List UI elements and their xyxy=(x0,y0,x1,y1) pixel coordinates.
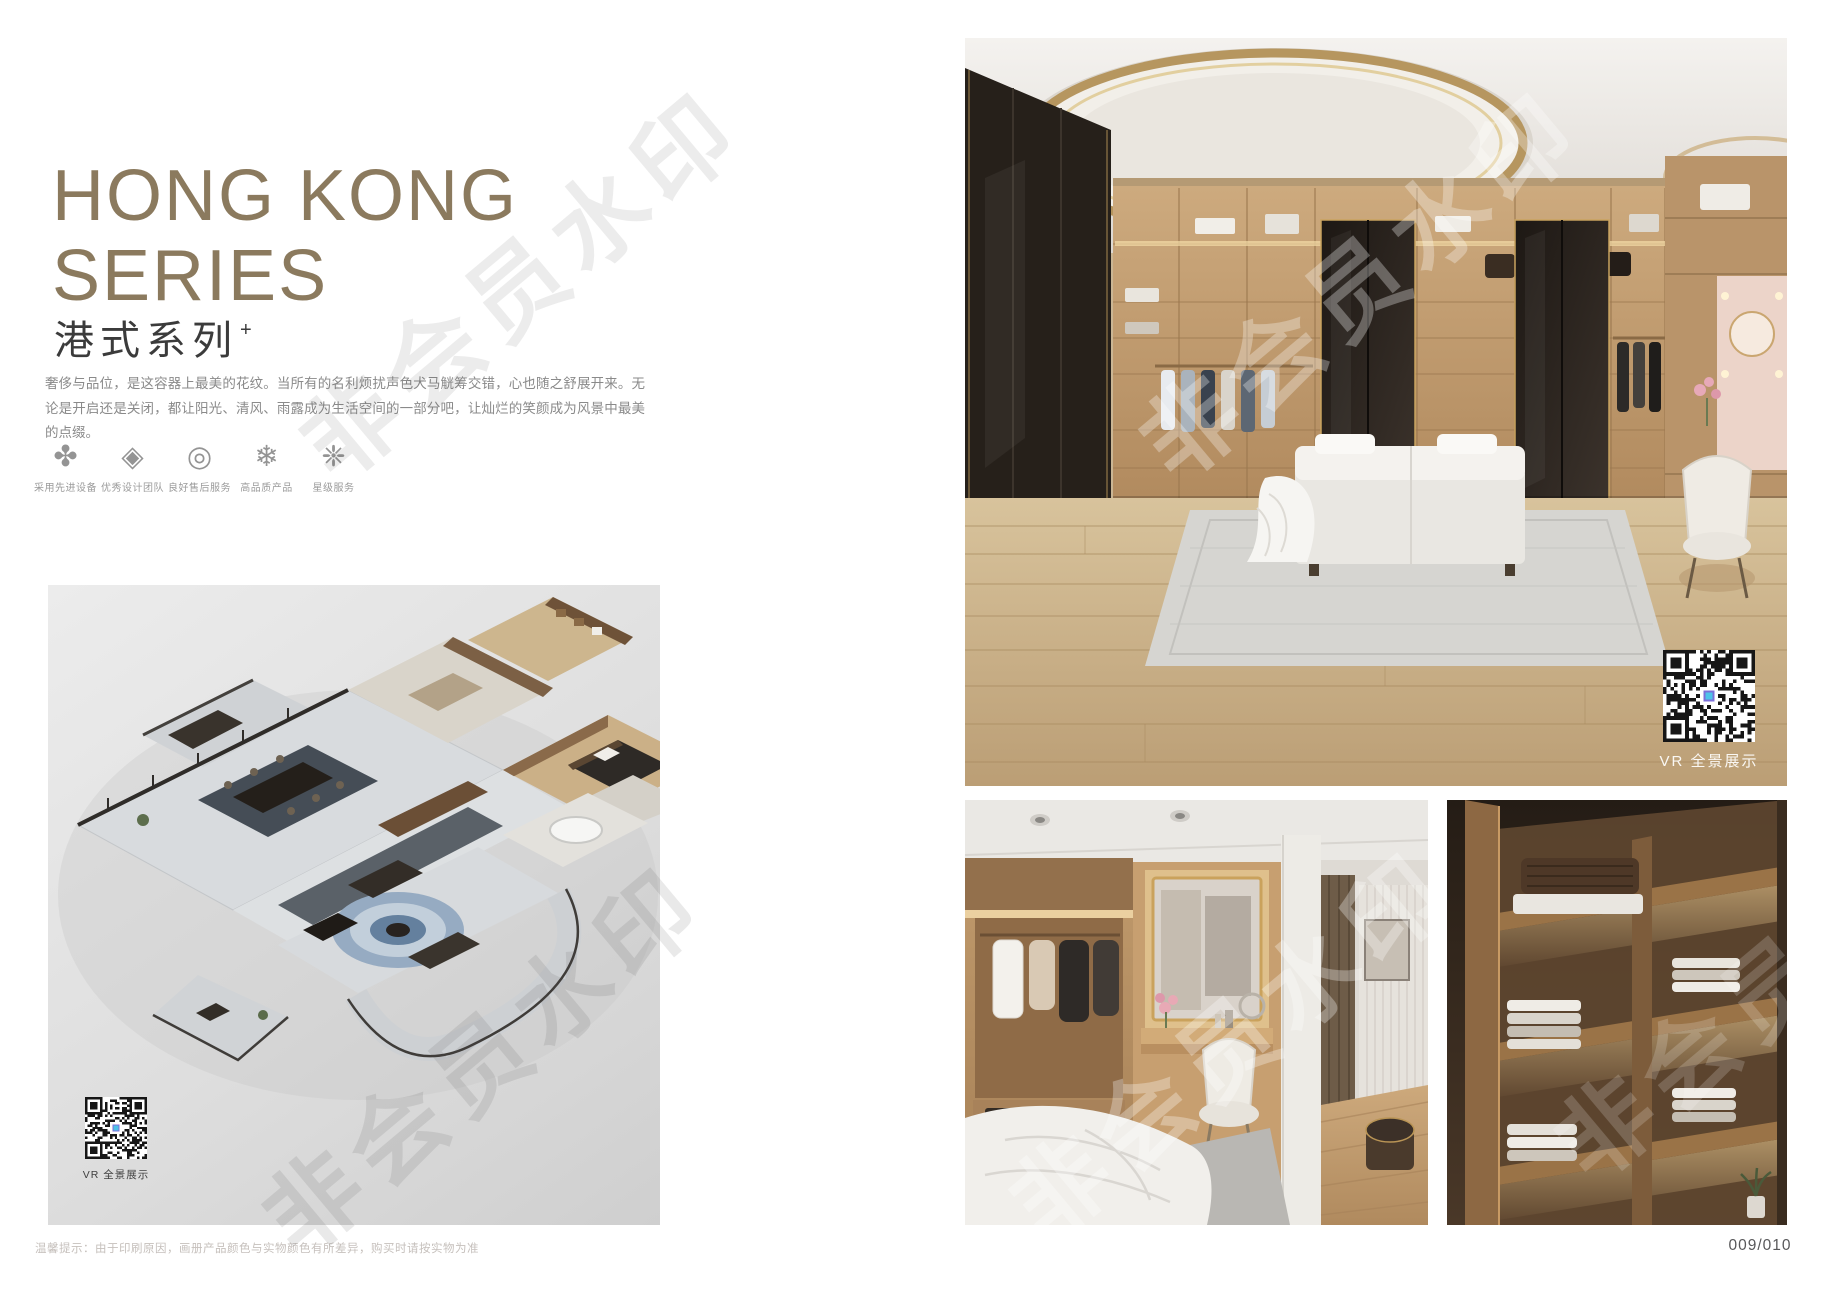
quality-product-icon: ❄ xyxy=(235,436,298,476)
after-sales-service-icon: ◎ xyxy=(168,436,231,476)
advanced-equipment-icon: ✤ xyxy=(34,436,97,476)
series-title-cn-text: 港式系列 xyxy=(54,319,238,363)
feature-label: 星级服务 xyxy=(302,479,365,494)
footer-disclaimer: 温馨提示：由于印刷原因，画册产品颜色与实物颜色有所差异，购买时请按实物为准 xyxy=(35,1240,479,1256)
photo-walkin-closet: VR 全景展示 xyxy=(965,38,1787,786)
photo-vanity-corner xyxy=(965,800,1428,1225)
star-service-icon: ❈ xyxy=(302,436,365,476)
title-line-2: SERIES xyxy=(52,236,518,316)
feature-label: 优秀设计团队 xyxy=(101,479,164,494)
feature-item: ◈ 优秀设计团队 xyxy=(101,436,164,494)
photo-shelf-detail xyxy=(1447,800,1787,1225)
catalog-spread: 非会员水印 非会员水印 非会员水印 非会员水印 非会员水印 HONG KONG … xyxy=(0,0,1836,1307)
vanity-corner-render xyxy=(965,800,1428,1225)
feature-item: ◎ 良好售后服务 xyxy=(168,436,231,494)
series-description: 奢侈与品位，是这容器上最美的花纹。当所有的名利烦扰声色犬马觥筹交错，心也随之舒展… xyxy=(45,372,645,446)
floorplan-image: VR 全景展示 xyxy=(48,585,660,1225)
feature-label: 良好售后服务 xyxy=(168,479,231,494)
feature-label: 采用先进设备 xyxy=(34,479,97,494)
shelf-detail-render xyxy=(1447,800,1787,1225)
vr-qr-code xyxy=(85,1097,147,1159)
series-title-cn: 港式系列+ xyxy=(54,308,250,366)
page-number: 009/010 xyxy=(1715,1237,1805,1255)
feature-item: ❈ 星级服务 xyxy=(302,436,365,494)
vr-label: VR 全景展示 xyxy=(1651,750,1767,771)
series-title-superscript: + xyxy=(240,319,252,341)
feature-label: 高品质产品 xyxy=(235,479,298,494)
design-team-icon: ◈ xyxy=(101,436,164,476)
feature-list: ✤ 采用先进设备 ◈ 优秀设计团队 ◎ 良好售后服务 ❄ 高品质产品 ❈ 星级服… xyxy=(34,436,365,494)
vr-qr-code xyxy=(1663,650,1755,742)
vr-label: VR 全景展示 xyxy=(75,1167,157,1182)
series-title-en: HONG KONG SERIES xyxy=(52,156,518,316)
title-line-1: HONG KONG xyxy=(52,156,518,236)
feature-item: ❄ 高品质产品 xyxy=(235,436,298,494)
feature-item: ✤ 采用先进设备 xyxy=(34,436,97,494)
